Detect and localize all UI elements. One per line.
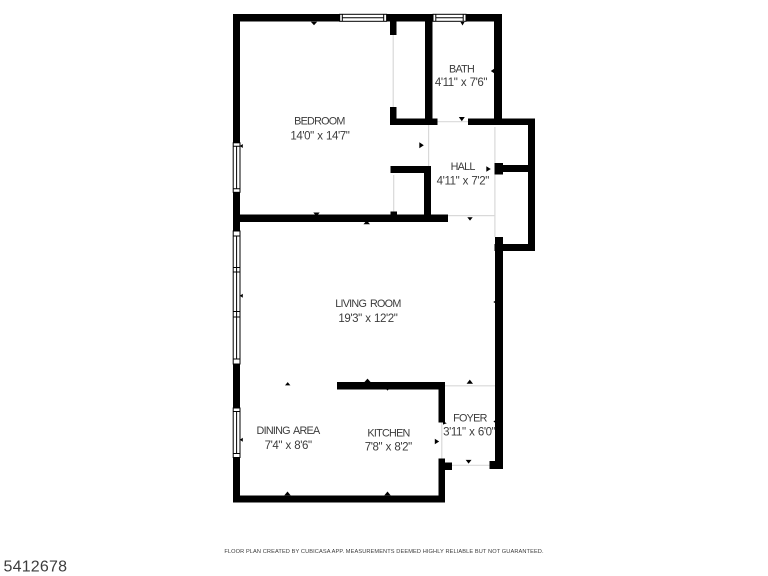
svg-text:7'8" x 8'2": 7'8" x 8'2" [365, 442, 412, 454]
svg-text:7'4" x 8'6": 7'4" x 8'6" [265, 440, 312, 452]
svg-text:FOYER: FOYER [453, 413, 487, 425]
svg-text:BATH: BATH [449, 63, 474, 75]
svg-text:HALL: HALL [451, 161, 476, 173]
svg-text:4'11" x 7'2": 4'11" x 7'2" [437, 176, 490, 188]
svg-text:FLOOR PLAN CREATED BY CUBICASA: FLOOR PLAN CREATED BY CUBICASA APP. MEAS… [224, 549, 544, 555]
svg-text:LIVING ROOM: LIVING ROOM [335, 298, 401, 310]
svg-text:BEDROOM: BEDROOM [294, 116, 345, 128]
svg-text:14'0" x 14'7": 14'0" x 14'7" [290, 130, 349, 142]
svg-text:KITCHEN: KITCHEN [367, 428, 409, 440]
svg-text:19'3" x 12'2": 19'3" x 12'2" [338, 313, 397, 325]
svg-text:5412678: 5412678 [4, 559, 68, 576]
svg-text:DINING AREA: DINING AREA [257, 425, 321, 437]
svg-text:4'11" x 7'6": 4'11" x 7'6" [435, 77, 488, 89]
svg-text:3'11" x 6'0": 3'11" x 6'0" [443, 427, 496, 439]
